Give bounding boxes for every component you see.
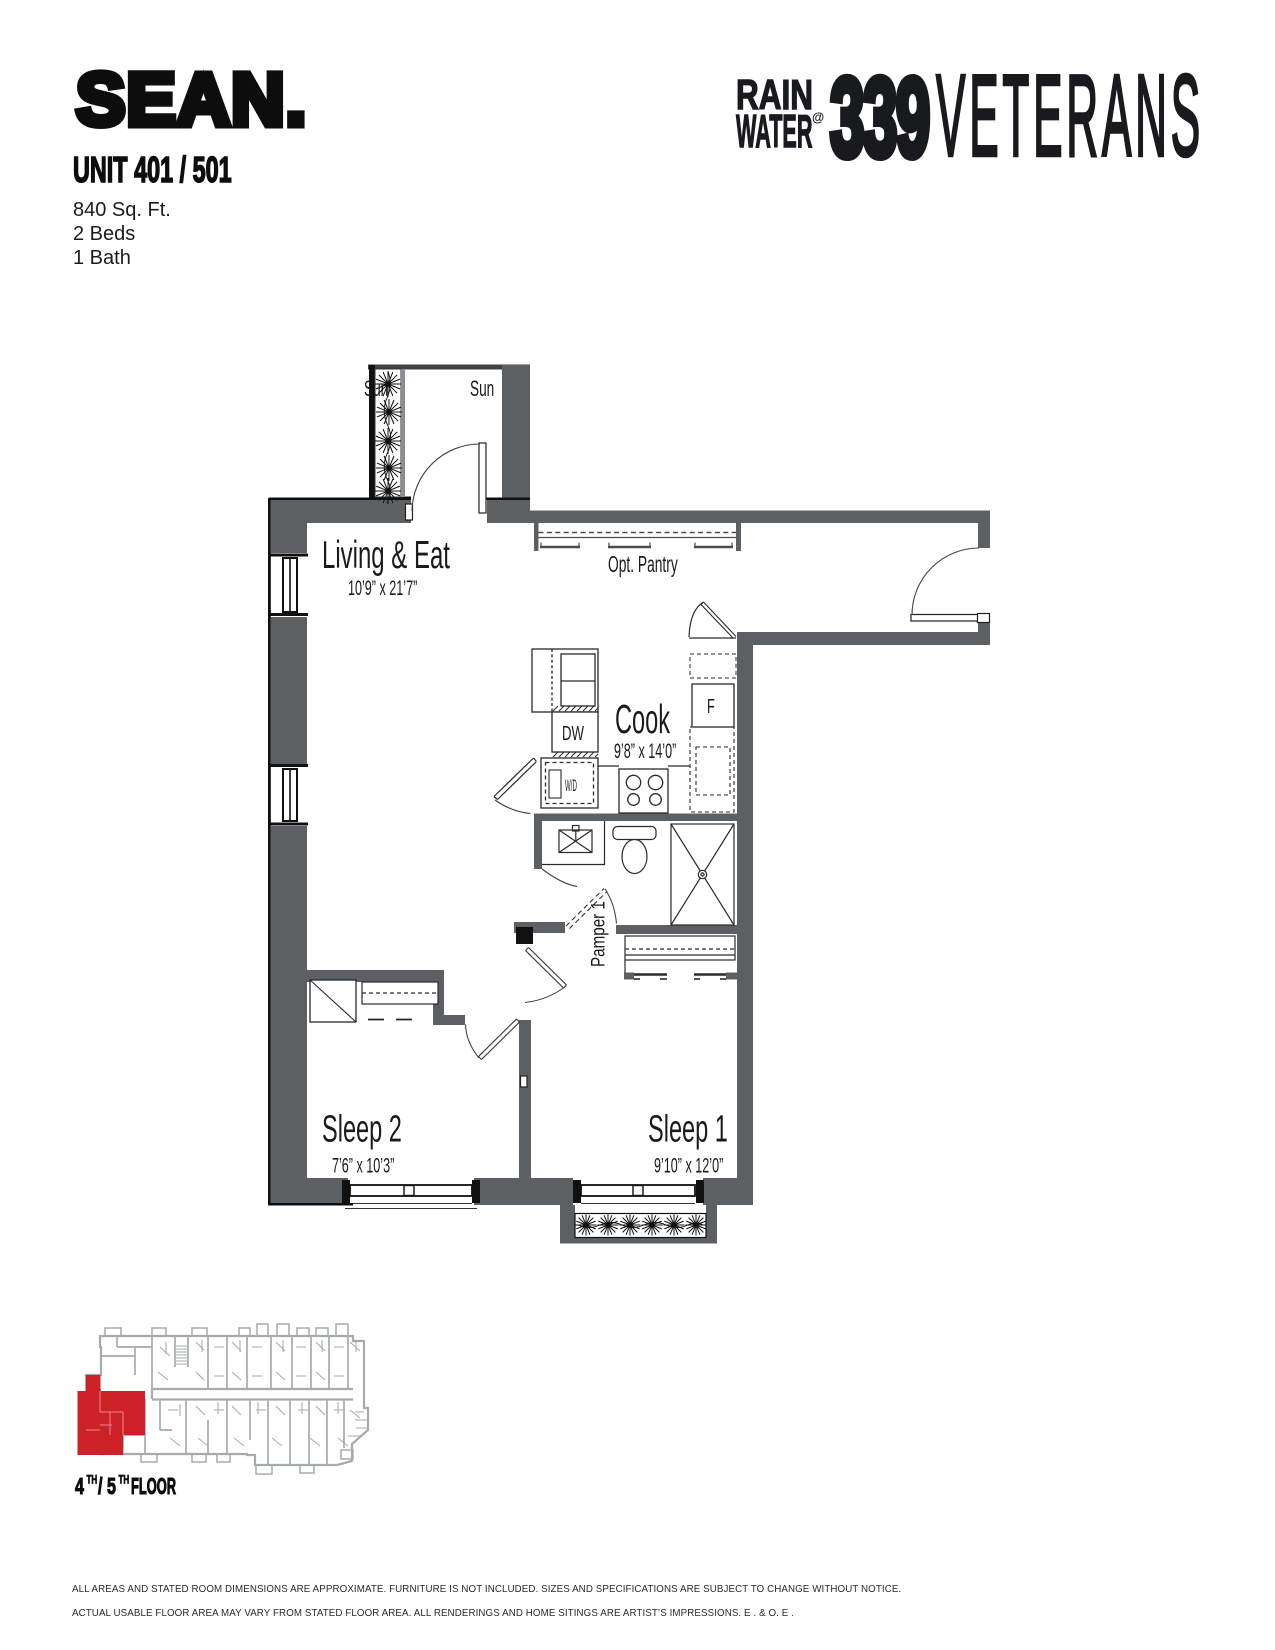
- svg-text:9’10” x 12’0”: 9’10” x 12’0”: [654, 1153, 723, 1177]
- svg-text:SEAN.: SEAN.: [76, 58, 307, 141]
- svg-text:Sleep 1: Sleep 1: [648, 1107, 728, 1150]
- svg-text:ALL AREAS AND STATED ROOM DIME: ALL AREAS AND STATED ROOM DIMENSIONS ARE…: [72, 1584, 901, 1595]
- svg-text:@: @: [812, 111, 824, 125]
- svg-text:Cook: Cook: [615, 697, 670, 742]
- svg-text:TH: TH: [87, 1474, 98, 1487]
- svg-text:10’9” x 21’7”: 10’9” x 21’7”: [348, 576, 417, 600]
- svg-text:Living & Eat: Living & Eat: [322, 533, 450, 576]
- svg-text:TH: TH: [119, 1474, 130, 1487]
- svg-text:1 Bath: 1 Bath: [73, 247, 131, 269]
- svg-text:4: 4: [75, 1474, 84, 1499]
- svg-text:ACTUAL USABLE FLOOR AREA MAY V: ACTUAL USABLE FLOOR AREA MAY VARY FROM S…: [72, 1608, 794, 1619]
- svg-text:Sun: Sun: [470, 376, 494, 401]
- svg-text:840 Sq. Ft.: 840 Sq. Ft.: [73, 199, 171, 221]
- svg-text:339: 339: [830, 57, 929, 180]
- svg-text:VETERANS: VETERANS: [936, 51, 1204, 181]
- svg-text:FLOOR: FLOOR: [131, 1473, 176, 1499]
- svg-text:F: F: [707, 695, 715, 718]
- svg-text:UNIT 401 / 501: UNIT 401 / 501: [73, 151, 232, 190]
- svg-text:7’6” x 10’3”: 7’6” x 10’3”: [332, 1153, 394, 1177]
- svg-text:Sleep 2: Sleep 2: [322, 1107, 402, 1150]
- svg-text:W/D: W/D: [565, 775, 577, 795]
- svg-text:DW: DW: [562, 722, 584, 744]
- svg-text:2 Beds: 2 Beds: [73, 223, 135, 245]
- svg-text:9’8” x 14’0”: 9’8” x 14’0”: [614, 739, 676, 763]
- svg-text:WATER: WATER: [736, 105, 812, 157]
- svg-text:/ 5: / 5: [98, 1474, 116, 1499]
- svg-text:Pamper 1: Pamper 1: [587, 901, 609, 967]
- svg-text:Opt. Pantry: Opt. Pantry: [608, 553, 678, 578]
